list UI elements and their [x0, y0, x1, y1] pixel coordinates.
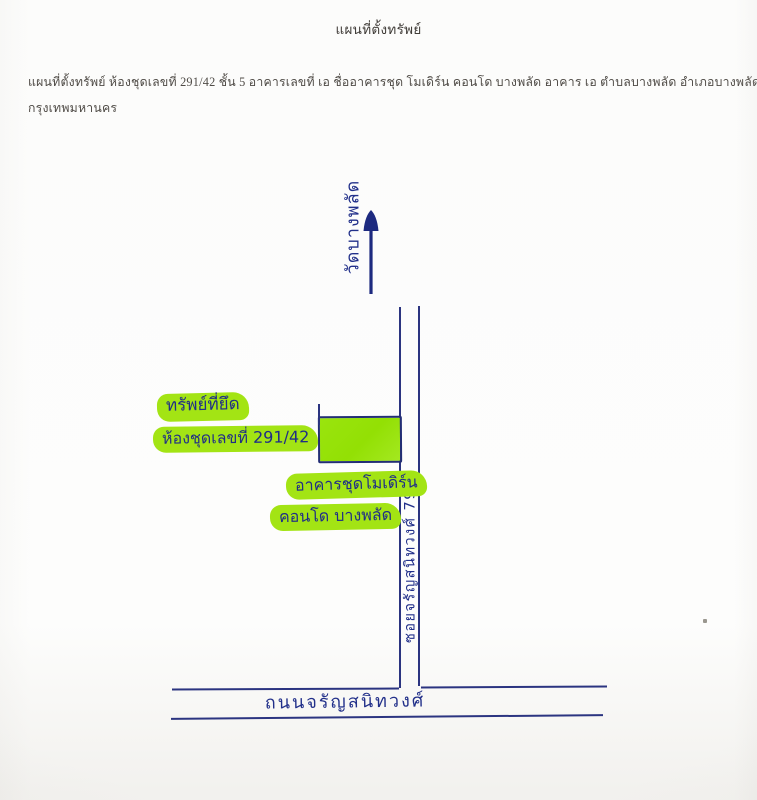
seized-property-label: ทรัพย์ที่ยึด: [157, 392, 249, 422]
soi-name-label: ซอยจรัญสนิทวงศ์ 79: [399, 489, 422, 643]
unit-number-label: ห้องชุดเลขที่ 291/42: [153, 425, 319, 453]
seized-building-rectangle: [318, 416, 402, 464]
building-name-label: อาคารชุดโมเดิร์น: [286, 470, 427, 500]
scanned-document-page: แผนที่ตั้งทรัพย์ แผนที่ตั้งทรัพย์ ห้องชุ…: [0, 0, 757, 800]
north-arrow-icon: [359, 208, 383, 296]
property-description-line2: กรุงเทพมหานคร: [28, 99, 117, 118]
building-corner-tick: [318, 404, 320, 425]
scan-speck: [703, 619, 707, 623]
document-title: แผนที่ตั้งทรัพย์: [0, 18, 757, 40]
condo-name-label: คอนโด บางพลัด: [270, 503, 401, 532]
property-description-line1: แผนที่ตั้งทรัพย์ ห้องชุดเลขที่ 291/42 ชั…: [28, 73, 757, 92]
main-road-name-label: ถนนจรัญสนิทวงศ์: [265, 685, 426, 716]
main-road-top-line-right: [421, 685, 607, 688]
main-road-bottom-line: [171, 714, 603, 720]
scan-shading-overlay: [0, 0, 757, 800]
